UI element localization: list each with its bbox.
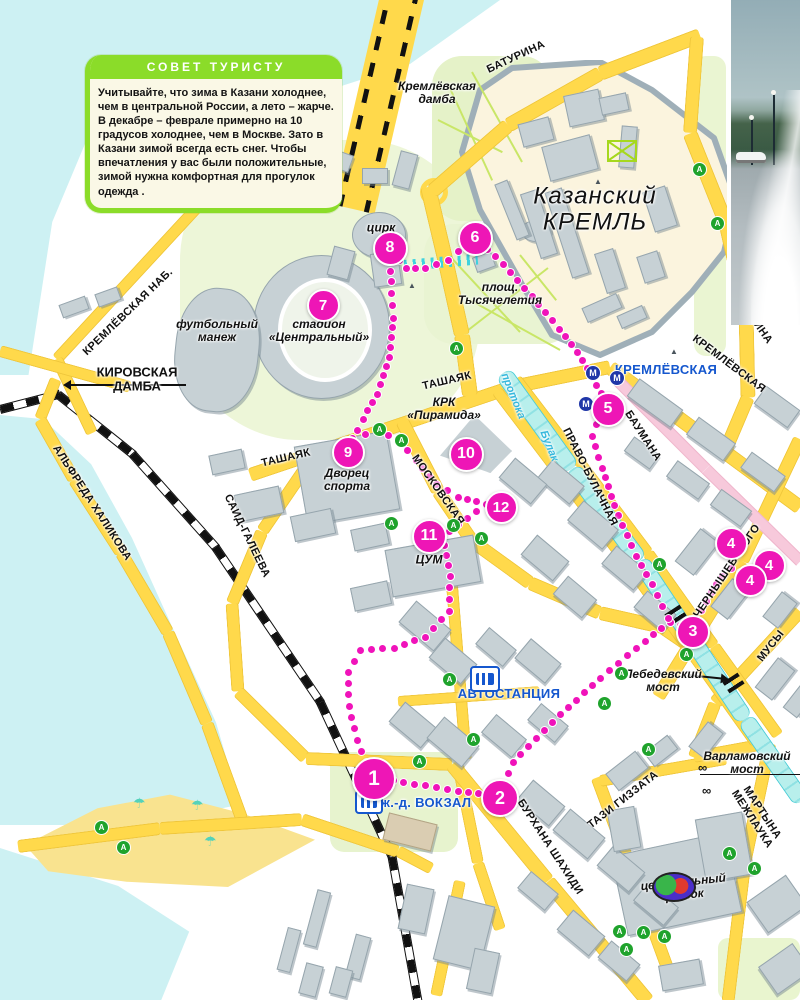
route-dot	[345, 680, 352, 687]
building	[329, 966, 354, 998]
metro-kremlevskaya-label: КРЕМЛЁВСКАЯ	[615, 363, 717, 377]
place-varlamovsky-bridge: Варламовский мост	[703, 750, 790, 776]
route-stop-3: 3	[676, 615, 710, 649]
route-dot	[533, 735, 540, 742]
route-dot	[507, 269, 514, 276]
route-dot	[383, 363, 390, 370]
route-dot	[446, 596, 453, 603]
route-dot	[360, 416, 367, 423]
route-dot	[430, 625, 437, 632]
building	[675, 528, 720, 576]
route-dot	[362, 431, 369, 438]
route-dot	[422, 782, 429, 789]
route-dot	[658, 625, 665, 632]
bus-stop-icon: А	[446, 518, 461, 533]
bus-stop-icon: А	[597, 696, 612, 711]
tower-icon: ▲	[408, 281, 416, 290]
route-dot	[492, 253, 499, 260]
metro-icon: М	[609, 370, 625, 386]
beach-umbrella-icon: ☂	[191, 797, 204, 814]
place-football-manezh: футбольный манеж	[176, 318, 258, 344]
route-stop-5: 5	[591, 392, 626, 427]
route-dot	[589, 682, 596, 689]
bus-stop-icon: А	[747, 861, 762, 876]
tip-box-body: Учитывайте, что зима в Казани холоднее, …	[90, 79, 342, 208]
route-stop-7: 7	[307, 289, 340, 322]
kazan-tourist-map: СОВЕТ ТУРИСТУ Учитывайте, что зима в Каз…	[0, 0, 800, 1000]
route-dot	[624, 532, 631, 539]
route-stop-8: 8	[373, 231, 408, 266]
route-dot	[500, 261, 507, 268]
route-stop-2: 2	[481, 779, 519, 817]
kremlin-construction-icon	[607, 140, 637, 162]
route-dot	[473, 498, 480, 505]
route-dot	[357, 647, 364, 654]
route-dot	[464, 496, 471, 503]
building	[514, 638, 561, 684]
route-dot	[369, 399, 376, 406]
route-dot	[605, 483, 612, 490]
route-dot	[345, 691, 352, 698]
building	[362, 168, 388, 184]
bus-stop-icon: А	[474, 531, 489, 546]
route-dot	[549, 719, 556, 726]
route-stop-10: 10	[449, 437, 484, 472]
bus-station-icon	[470, 666, 500, 692]
beach-umbrella-icon: ☂	[204, 833, 217, 850]
route-dot	[377, 381, 384, 388]
bus-stop-icon: А	[652, 557, 667, 572]
route-dot	[595, 454, 602, 461]
route-stop-4: 4	[734, 564, 767, 597]
route-dot	[599, 465, 606, 472]
route-dot	[665, 615, 672, 622]
route-dot	[525, 743, 532, 750]
bus-stop-icon: А	[116, 840, 131, 855]
route-dot	[379, 645, 386, 652]
place-pyramid: КРК «Пирамида»	[407, 396, 481, 422]
route-dot	[597, 675, 604, 682]
lake-left	[0, 415, 240, 825]
tourist-tip-box: СОВЕТ ТУРИСТУ Учитывайте, что зима в Каз…	[85, 55, 342, 213]
bus-stop-icon: А	[372, 422, 387, 437]
railway	[129, 450, 220, 550]
bus-stop-icon: А	[412, 754, 427, 769]
route-dot	[446, 608, 453, 615]
route-dot	[581, 689, 588, 696]
route-dot	[633, 645, 640, 652]
route-dot	[422, 265, 429, 272]
route-dot	[568, 341, 575, 348]
route-dot	[368, 646, 375, 653]
route-dot	[619, 522, 626, 529]
building	[303, 889, 331, 948]
bus-stop-icon: А	[710, 216, 725, 231]
route-dot	[433, 784, 440, 791]
route-dot	[505, 770, 512, 777]
place-millennium-square: площ. Тысячелетия	[458, 281, 542, 307]
place-stadium: стадион «Центральный»	[269, 318, 369, 344]
route-dot	[351, 725, 358, 732]
route-dot	[455, 248, 462, 255]
route-stop-6: 6	[458, 221, 493, 256]
bus-stop-icon: А	[636, 925, 651, 940]
route-dot	[386, 354, 393, 361]
tip-box-title: СОВЕТ ТУРИСТУ	[90, 55, 342, 79]
beach-umbrella-icon: ☂	[133, 795, 146, 812]
route-dot	[422, 634, 429, 641]
route-dot	[608, 493, 615, 500]
place-kazan-kremlin: Казанский КРЕМЛЬ	[533, 184, 656, 237]
label-rail-terminal: ж.-д. ВОКЗАЛ	[381, 796, 472, 810]
route-dot	[388, 334, 395, 341]
route-dot	[380, 372, 387, 379]
place-lebedevsky-bridge: Лебедевский мост	[624, 668, 702, 694]
route-dot	[388, 290, 395, 297]
sight-icon: ∞	[702, 783, 711, 798]
route-dot	[541, 727, 548, 734]
route-dot	[633, 553, 640, 560]
route-dot	[401, 641, 408, 648]
route-dot	[649, 581, 656, 588]
bus-stop-icon: А	[394, 433, 409, 448]
route-dot	[624, 652, 631, 659]
route-dot	[444, 786, 451, 793]
route-dot	[517, 751, 524, 758]
route-dot	[549, 317, 556, 324]
route-dot	[602, 474, 609, 481]
building	[208, 449, 245, 476]
route-dot	[354, 427, 361, 434]
route-dot	[390, 315, 397, 322]
building	[350, 580, 392, 611]
route-dot	[642, 638, 649, 645]
street-kirovskaya-damba: КИРОВСКАЯ ДАМБА	[97, 366, 178, 395]
route-stop-9: 9	[332, 436, 365, 469]
building	[58, 296, 89, 319]
route-dot	[510, 759, 517, 766]
route-dot	[455, 788, 462, 795]
place-tsum: ЦУМ	[416, 553, 443, 566]
building	[746, 875, 800, 934]
route-dot	[348, 714, 355, 721]
bus-stop-icon: А	[384, 516, 399, 531]
bus-stop-icon: А	[614, 666, 629, 681]
place-sports-palace: Дворец спорта	[324, 467, 370, 493]
route-dot	[351, 658, 358, 665]
route-dot	[579, 357, 586, 364]
bus-stop-icon: А	[692, 162, 707, 177]
route-dot	[556, 326, 563, 333]
route-dot	[411, 637, 418, 644]
route-dot	[387, 344, 394, 351]
route-dot	[557, 711, 564, 718]
route-dot	[574, 349, 581, 356]
road-segment	[233, 686, 310, 762]
route-dot	[412, 265, 419, 272]
place-kremlevskaya-damba: Кремлёвская дамба	[398, 80, 476, 106]
bus-stop-icon: А	[641, 742, 656, 757]
route-dot	[593, 382, 600, 389]
bus-stop-icon: А	[619, 942, 634, 957]
route-stop-1: 1	[352, 757, 396, 801]
route-dot	[354, 737, 361, 744]
bus-stop-icon: А	[442, 672, 457, 687]
tower-icon: ▲	[670, 347, 678, 356]
bus-stop-icon: А	[466, 732, 481, 747]
route-dot	[403, 265, 410, 272]
route-dot	[654, 592, 661, 599]
route-dot	[445, 562, 452, 569]
route-dot	[387, 268, 394, 275]
route-dot	[389, 324, 396, 331]
route-dot	[391, 645, 398, 652]
building	[475, 627, 517, 667]
bus-stop-icon: А	[94, 820, 109, 835]
route-dot	[573, 697, 580, 704]
route-dot	[433, 261, 440, 268]
route-dot	[400, 779, 407, 786]
building	[277, 927, 302, 973]
route-dot	[345, 669, 352, 676]
route-dot	[404, 447, 411, 454]
route-dot	[374, 391, 381, 398]
route-dot	[389, 302, 396, 309]
route-dot	[358, 748, 365, 755]
route-dot	[455, 494, 462, 501]
route-stop-12: 12	[485, 491, 518, 524]
route-stop-4: 4	[715, 527, 748, 560]
route-dot	[411, 781, 418, 788]
route-stop-11: 11	[412, 519, 447, 554]
sight-icon: ∞	[698, 760, 707, 775]
route-dot	[565, 704, 572, 711]
photo-fountain	[727, 0, 800, 325]
bus-stop-icon: А	[612, 924, 627, 939]
building	[298, 962, 324, 998]
route-dot	[562, 333, 569, 340]
route-dot	[447, 573, 454, 580]
bus-stop-icon: А	[657, 929, 672, 944]
route-dot	[606, 667, 613, 674]
building	[783, 684, 800, 719]
bus-stop-icon: А	[449, 341, 464, 356]
metro-icon: М	[585, 365, 601, 381]
route-dot	[650, 631, 657, 638]
route-dot	[346, 703, 353, 710]
building	[658, 959, 704, 992]
bus-stop-icon: А	[679, 647, 694, 662]
route-dot	[473, 508, 480, 515]
route-dot	[542, 309, 549, 316]
building	[398, 884, 435, 935]
route-dot	[438, 616, 445, 623]
route-dot	[443, 552, 450, 559]
building	[290, 508, 336, 542]
route-dot	[445, 257, 452, 264]
road-segment	[226, 603, 245, 692]
route-dot	[592, 443, 599, 450]
route-dot	[638, 562, 645, 569]
market-icon	[652, 872, 696, 902]
bus-stop-icon: А	[722, 846, 737, 861]
route-dot	[589, 433, 596, 440]
route-dot	[388, 278, 395, 285]
